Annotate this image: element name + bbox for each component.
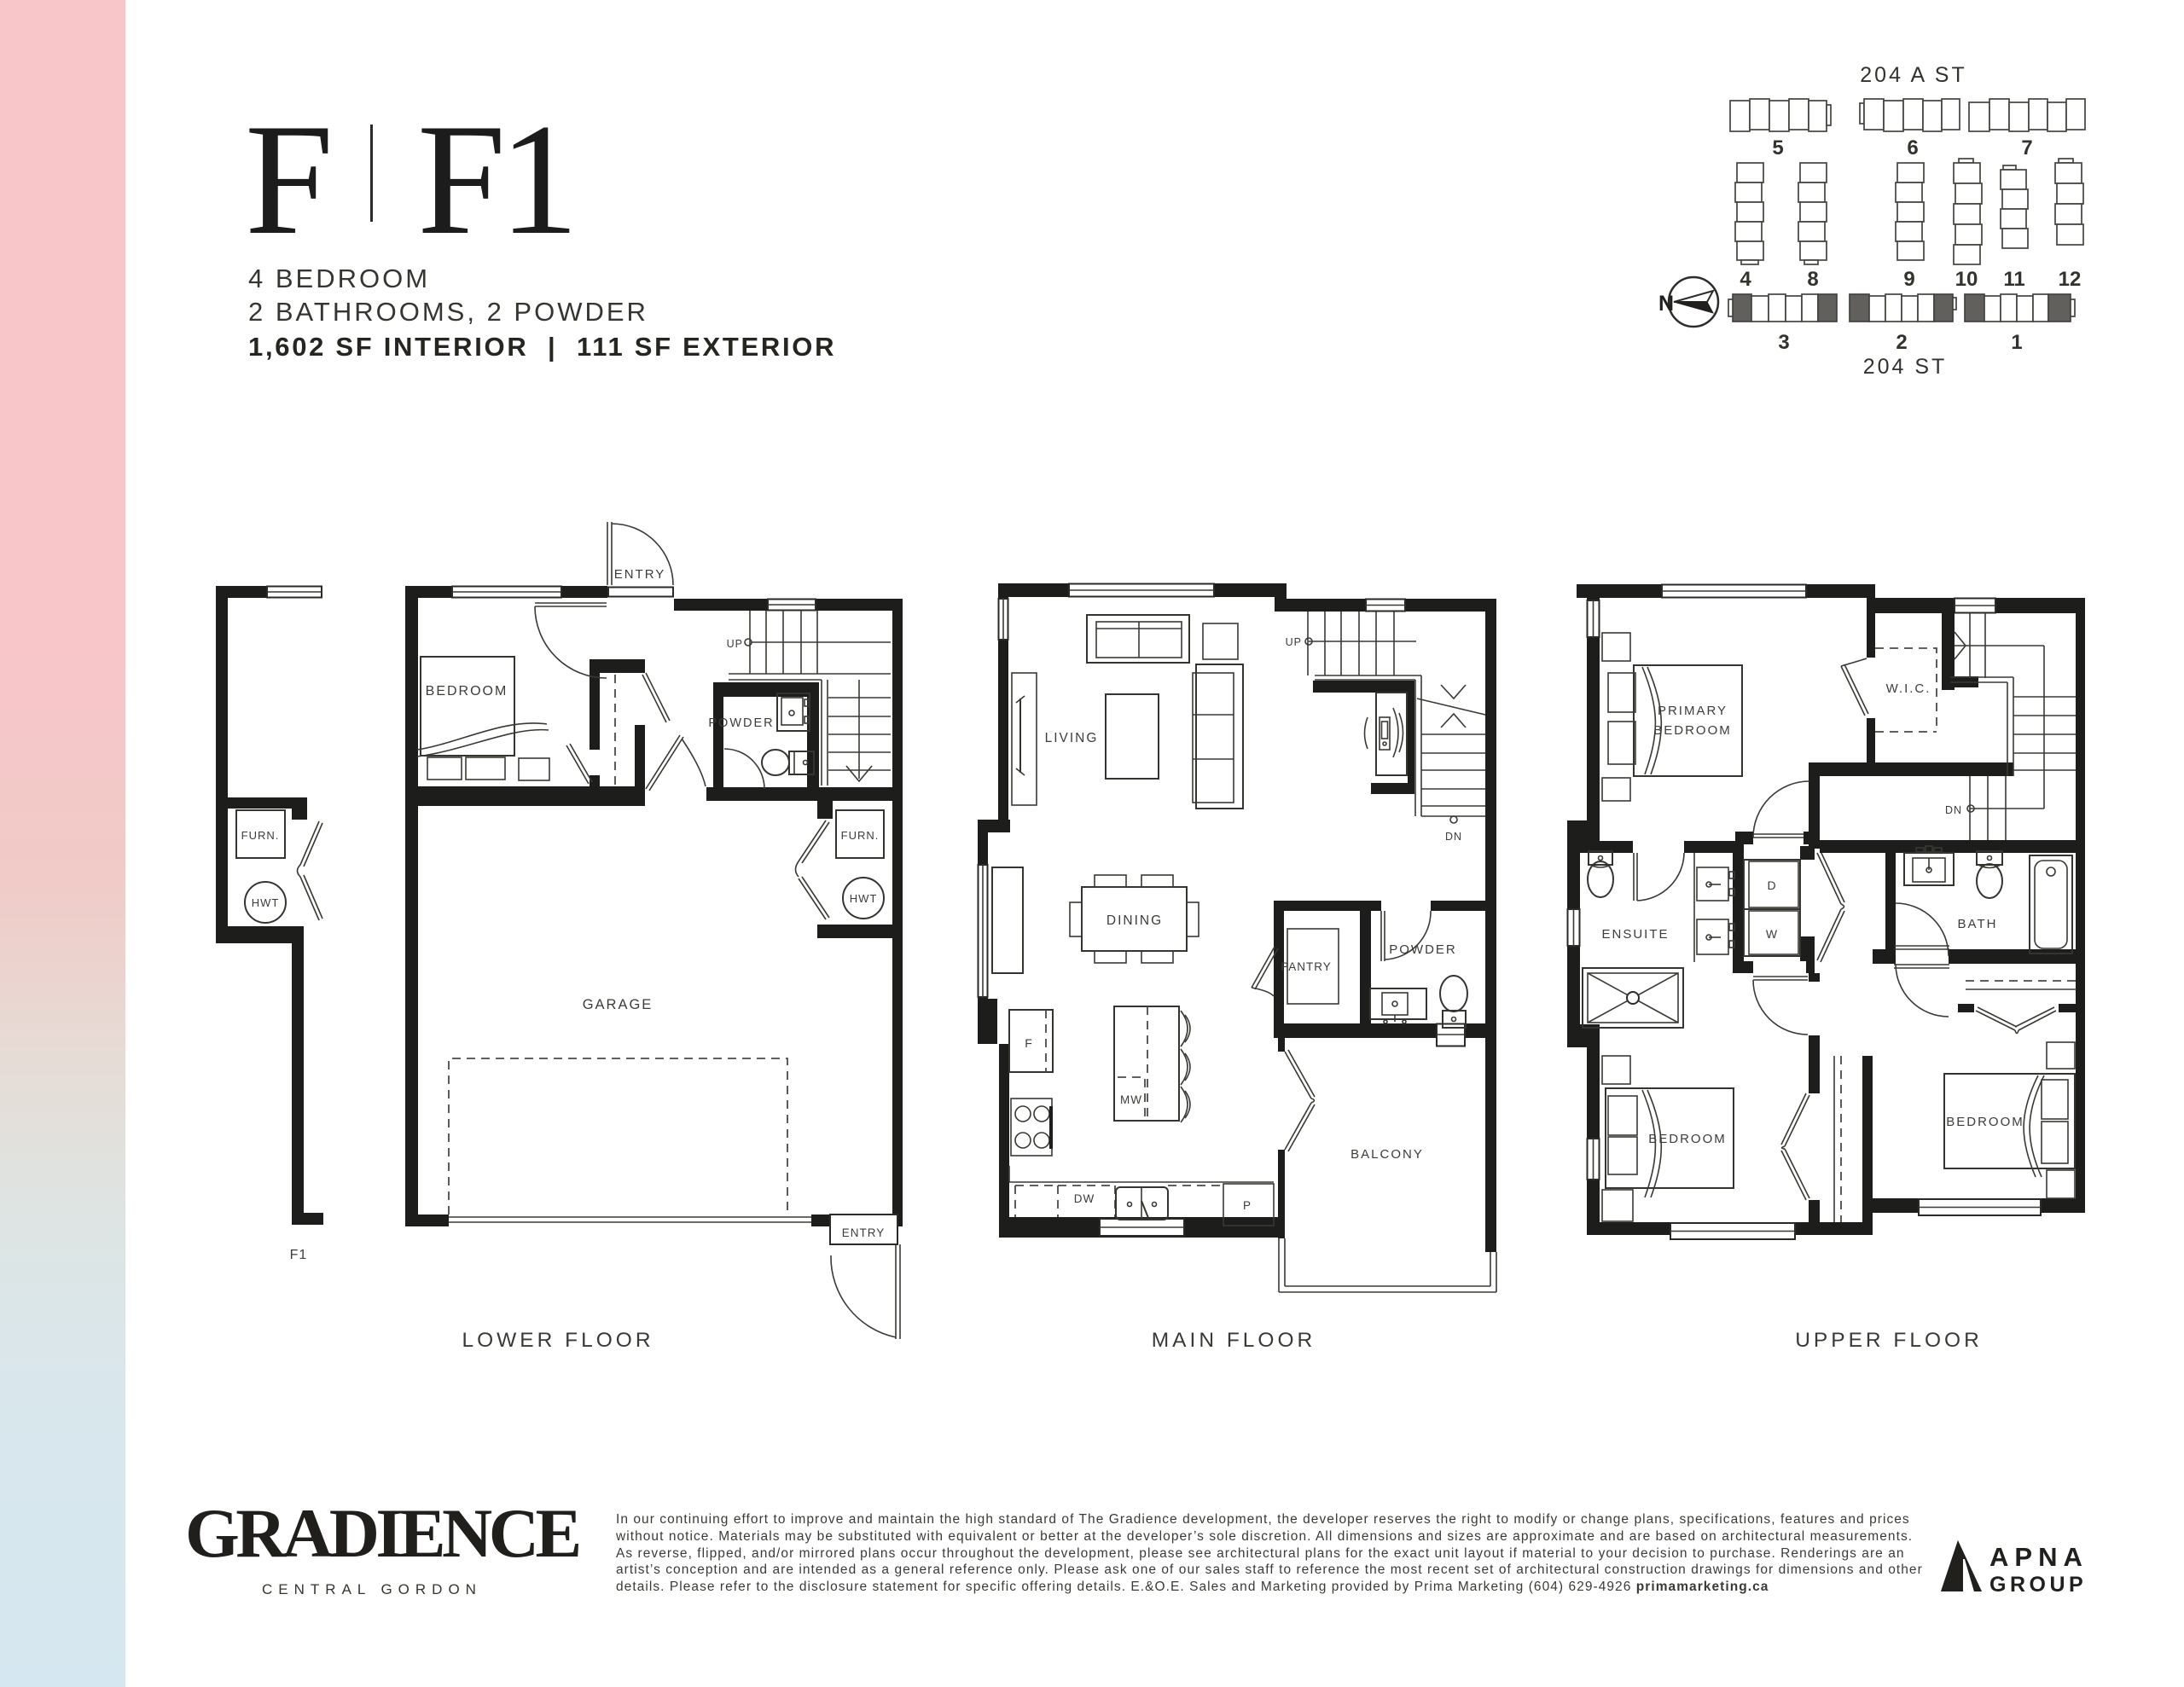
svg-text:ENTRY: ENTRY <box>842 1226 886 1239</box>
svg-text:2: 2 <box>1896 331 1907 354</box>
svg-text:BALCONY: BALCONY <box>1350 1147 1424 1162</box>
svg-text:UP: UP <box>727 638 743 650</box>
svg-text:APNA: APNA <box>1989 1542 2088 1572</box>
svg-text:BEDROOM: BEDROOM <box>1946 1115 2024 1129</box>
svg-text:1: 1 <box>2011 331 2022 354</box>
svg-text:HWT: HWT <box>850 892 878 905</box>
svg-text:BATH: BATH <box>1958 917 1998 931</box>
svg-text:204 A ST: 204 A ST <box>1860 63 1966 87</box>
svg-text:204 ST: 204 ST <box>1863 355 1948 379</box>
svg-text:GARAGE: GARAGE <box>583 997 653 1012</box>
svg-text:3: 3 <box>1778 331 1789 354</box>
svg-text:11: 11 <box>2003 268 2024 291</box>
svg-text:8: 8 <box>1807 268 1818 291</box>
svg-text:D: D <box>1767 878 1776 892</box>
svg-text:FURN.: FURN. <box>841 829 880 842</box>
svg-text:PANTRY: PANTRY <box>1281 960 1332 973</box>
svg-text:F: F <box>1025 1036 1033 1050</box>
svg-text:UP: UP <box>1286 636 1302 648</box>
svg-text:FURN.: FURN. <box>241 829 280 842</box>
svg-text:6: 6 <box>1907 136 1918 159</box>
svg-text:DN: DN <box>1945 804 1962 816</box>
svg-text:ENSUITE: ENSUITE <box>1601 927 1669 942</box>
svg-text:10: 10 <box>1955 268 1978 291</box>
svg-text:ENTRY: ENTRY <box>614 567 666 582</box>
svg-text:5: 5 <box>1772 136 1783 159</box>
svg-text:BEDROOM: BEDROOM <box>1648 1132 1727 1146</box>
svg-text:POWDER: POWDER <box>1389 942 1457 957</box>
svg-text:N: N <box>1658 292 1674 316</box>
svg-text:12: 12 <box>2059 268 2082 291</box>
svg-text:POWDER: POWDER <box>708 716 774 730</box>
svg-text:F1: F1 <box>290 1248 308 1262</box>
svg-text:7: 7 <box>2021 136 2032 159</box>
svg-text:DINING: DINING <box>1107 913 1163 928</box>
svg-text:P: P <box>1243 1199 1252 1212</box>
svg-text:BEDROOM: BEDROOM <box>426 684 508 699</box>
svg-text:DN: DN <box>1445 831 1462 843</box>
svg-text:W.I.C.: W.I.C. <box>1886 681 1931 696</box>
svg-text:PRIMARY: PRIMARY <box>1658 704 1728 718</box>
svg-text:GROUP: GROUP <box>1989 1573 2087 1597</box>
svg-text:W: W <box>1766 927 1778 941</box>
svg-text:HWT: HWT <box>252 896 280 909</box>
svg-text:BEDROOM: BEDROOM <box>1653 723 1732 738</box>
svg-text:DW: DW <box>1074 1192 1095 1205</box>
svg-text:9: 9 <box>1903 268 1914 291</box>
svg-text:4: 4 <box>1740 268 1751 291</box>
svg-text:LIVING: LIVING <box>1045 731 1099 745</box>
svg-text:MW: MW <box>1120 1093 1142 1106</box>
